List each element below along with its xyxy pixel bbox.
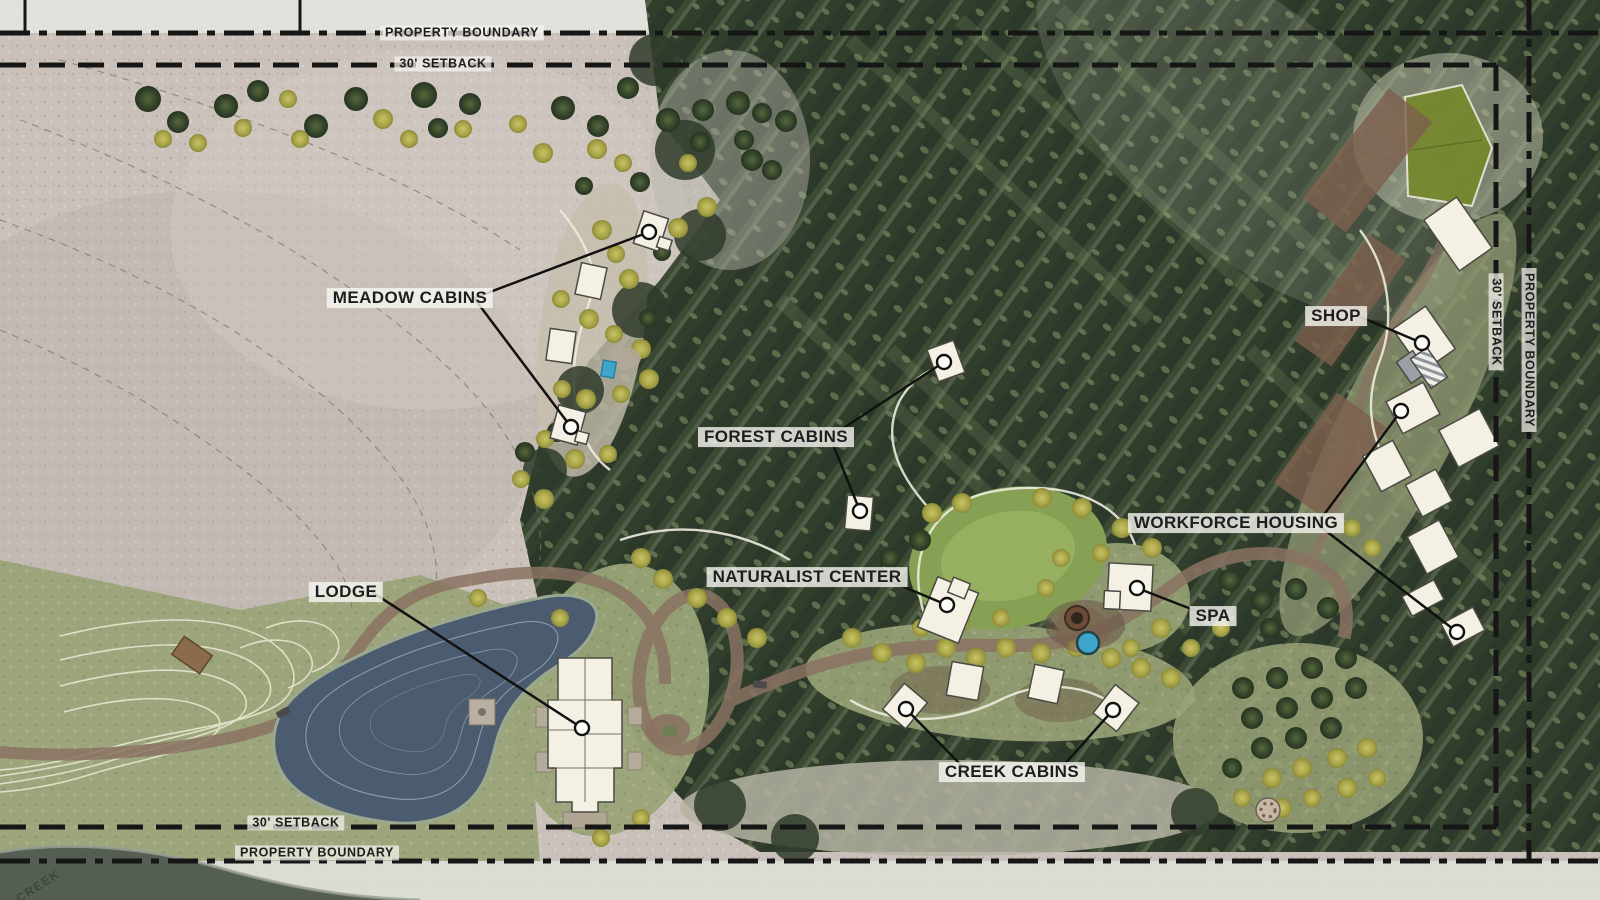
west-patio	[469, 699, 495, 725]
label-property-boundary-bottom: PROPERTY BOUNDARY	[235, 845, 399, 860]
label-lodge: LODGE	[309, 582, 383, 602]
label-creek-cabins: CREEK CABINS	[939, 762, 1085, 782]
meadow-pool	[601, 360, 617, 378]
lodge-terrace	[628, 707, 642, 725]
firepit	[1256, 798, 1280, 822]
label-setback-right: 30' SETBACK	[1488, 273, 1503, 370]
label-setback-top: 30' SETBACK	[394, 56, 491, 71]
site-plan-artwork	[0, 0, 1600, 900]
lodge-terrace	[628, 752, 642, 770]
spa-building	[1104, 563, 1154, 611]
label-meadow-cabins: MEADOW CABINS	[327, 288, 493, 308]
label-spa: SPA	[1190, 606, 1237, 626]
label-naturalist-center: NATURALIST CENTER	[707, 567, 908, 587]
label-shop: SHOP	[1305, 306, 1367, 326]
label-property-boundary-right: PROPERTY BOUNDARY	[1521, 268, 1536, 432]
label-workforce-housing: WORKFORCE HOUSING	[1128, 513, 1344, 533]
label-property-boundary-top: PROPERTY BOUNDARY	[380, 25, 544, 40]
spa-pool	[1077, 632, 1099, 654]
label-setback-bottom: 30' SETBACK	[247, 815, 344, 830]
label-forest-cabins: FOREST CABINS	[698, 427, 854, 447]
site-plan-map: MEADOW CABINS FOREST CABINS NATURALIST C…	[0, 0, 1600, 900]
